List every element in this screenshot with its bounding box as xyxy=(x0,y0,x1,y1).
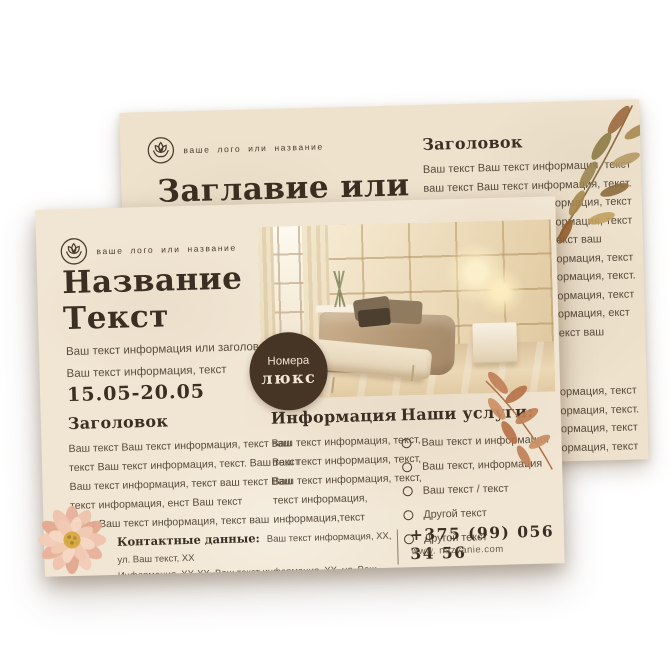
phone-number: +375 (99) 056 34 56 xyxy=(410,521,565,563)
badge-line-1: Номера xyxy=(267,355,309,368)
contacts-block: Контактные данные:Ваш текст информация, … xyxy=(117,527,397,577)
circle-bullet-icon xyxy=(403,486,413,496)
back-logo: ваше лого или название xyxy=(146,132,324,166)
column-heading: Заголовок xyxy=(68,408,283,433)
title-line-1: Название xyxy=(62,260,243,301)
subtitle-line-2: Ваш текст информация, текст xyxy=(66,364,226,380)
column-heading: Наши услуги: xyxy=(401,401,556,424)
column-zagolovok: Заголовок Ваш текст Ваш текст информация… xyxy=(68,408,286,535)
lux-rooms-badge: Номера люкс xyxy=(249,331,329,411)
service-label: Другой текст xyxy=(423,507,487,521)
back-logo-text: ваше лого или название xyxy=(183,141,324,155)
vertical-divider xyxy=(397,529,399,564)
circle-bullet-icon xyxy=(401,438,411,448)
lotus-logo-icon xyxy=(146,135,176,165)
title-line-2: Текст xyxy=(63,296,244,337)
lotus-logo-icon xyxy=(59,236,89,266)
contacts-label: Контактные данные: xyxy=(117,531,260,549)
circle-bullet-icon xyxy=(403,510,413,520)
column-informaciya: Информация Ваш текст информация, текст, … xyxy=(271,405,402,529)
mockup-canvas: ваше лого или название Заглавие или Заго… xyxy=(0,0,670,670)
service-label: Ваш текст / текст xyxy=(423,483,509,497)
subtitle-line-1: Ваш текст информация или заголовок. xyxy=(66,341,274,358)
text-line: Ваш текст информация, текст, xyxy=(272,469,400,491)
back-column-heading: Заголовок xyxy=(422,130,627,154)
badge-line-2: люкс xyxy=(261,368,316,388)
circle-bullet-icon xyxy=(402,462,412,472)
front-flyer-card: ваше лого или название Название Текст Ва… xyxy=(35,196,564,576)
service-label: Ваш текст, информация xyxy=(422,458,542,473)
service-label: Ваш текст и информация xyxy=(421,434,549,449)
front-logo-text: ваше лого или название xyxy=(96,242,237,256)
front-flyer-title: Название Текст xyxy=(62,260,244,337)
date-range: 15.05-20.05 xyxy=(67,380,205,406)
